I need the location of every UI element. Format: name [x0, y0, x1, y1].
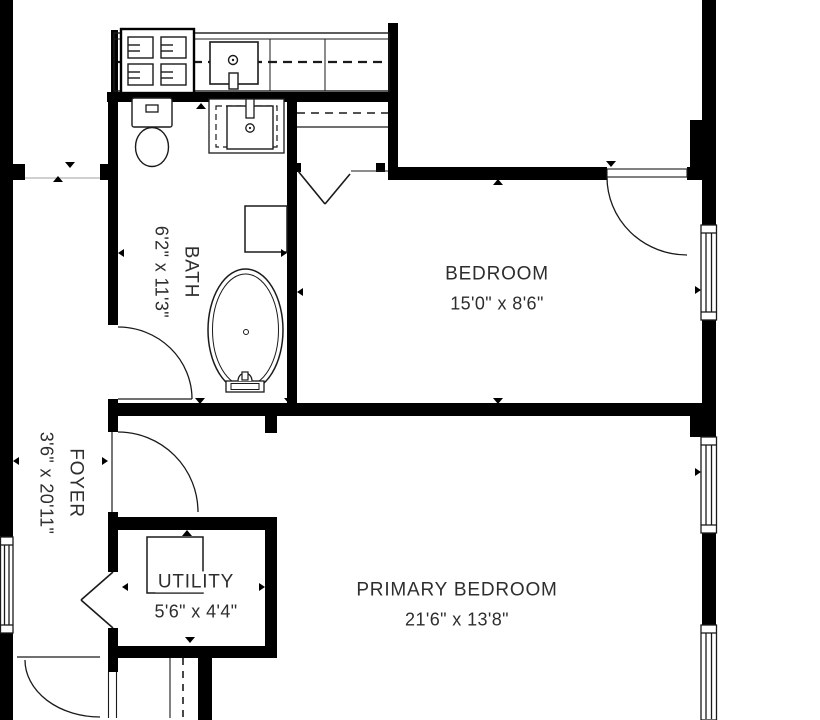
room-dims-utility: 5'6" x 4'4" — [152, 602, 239, 622]
wall-exterior-right-seg2 — [702, 320, 716, 437]
bath-shelf-symbol — [245, 206, 287, 252]
room-name-utility: UTILITY — [156, 571, 236, 592]
wall-utility-east — [265, 517, 277, 658]
kitchen-sink-symbol — [210, 42, 258, 89]
wall-exterior-left-upper — [0, 0, 13, 537]
wall-primary-west-lower — [198, 658, 212, 720]
wall-bedroom-primary-divider — [108, 403, 716, 416]
room-name-bedroom: BEDROOM — [443, 263, 551, 284]
room-name-primary-bedroom: PRIMARY BEDROOM — [354, 579, 559, 600]
window-right-primary-2 — [701, 625, 717, 720]
wall-stub-passage-north — [265, 416, 277, 433]
room-dims-bath: 6'2" x 11'3" — [151, 224, 171, 320]
wall-exterior-right-seg3 — [702, 533, 716, 625]
wall-exterior-right-seg1 — [702, 0, 716, 225]
room-label-bedroom: BEDROOM 15'0" x 8'6" — [443, 259, 551, 318]
wall-bath-east — [287, 95, 297, 412]
room-label-utility: UTILITY 5'6" x 4'4" — [152, 567, 239, 626]
stove-symbol — [121, 29, 194, 93]
wall-bath-west — [108, 93, 118, 325]
window-right-primary-1 — [701, 437, 717, 533]
room-label-bath: BATH 6'2" x 11'3" — [146, 224, 205, 320]
wall-utility-south — [108, 646, 277, 658]
room-name-bath: BATH — [181, 244, 202, 300]
closet-pivot-block-left — [292, 163, 301, 172]
room-dims-foyer: 3'6" x 20'11" — [36, 430, 56, 537]
bathtub-symbol — [208, 269, 283, 392]
wall-bedroom-north — [388, 167, 607, 180]
wall-utility-north — [108, 517, 277, 530]
floorplan: BATH 6'2" x 11'3" FOYER 3'6" x 20'11" BE… — [0, 0, 820, 720]
vanity-sink-symbol — [209, 99, 284, 153]
room-dims-bedroom: 15'0" x 8'6" — [448, 294, 546, 314]
room-name-foyer: FOYER — [66, 446, 87, 519]
wall-stub-foyer-opening-left — [13, 164, 25, 180]
room-label-foyer: FOYER 3'6" x 20'11" — [31, 430, 90, 537]
window-right-bedroom — [701, 225, 717, 320]
wall-pilaster-bedroom-ne — [690, 120, 702, 180]
room-dims-primary-bedroom: 21'6" x 13'8" — [403, 610, 511, 630]
window-left-foyer — [1, 537, 14, 633]
wall-exterior-left-lower — [0, 633, 13, 720]
room-label-primary-bedroom: PRIMARY BEDROOM 21'6" x 13'8" — [354, 575, 559, 634]
